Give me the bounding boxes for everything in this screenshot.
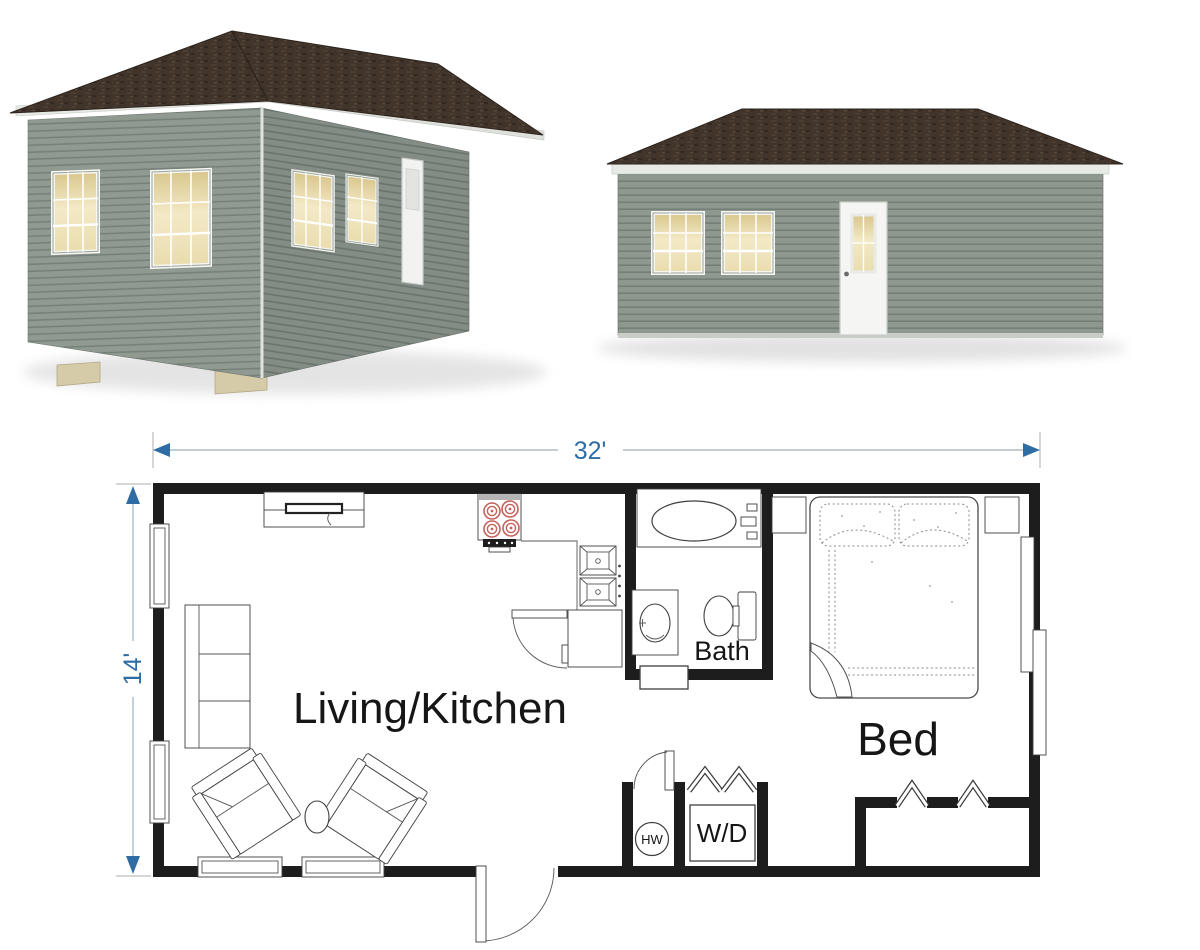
depth-dimension-label: 14' [119,653,147,686]
lit-window [347,175,377,245]
window [150,741,169,823]
floor-plan: 32' 14' [116,432,1046,942]
exterior-render-corner-view [10,31,547,394]
bathroom: Bath [632,489,761,689]
bed-label: Bed [857,713,939,765]
armchair [187,745,301,859]
kitchen [478,494,622,668]
window [150,524,169,608]
burner [503,520,519,536]
arrow-left-icon [153,443,170,457]
eave-fascia [612,163,1109,174]
bedroom: Bed [772,497,1019,806]
burner [484,503,500,519]
burner [502,501,518,517]
width-dimension-label: 32' [574,437,607,465]
lit-window [152,170,210,267]
tv-console [264,492,364,527]
armchair [318,750,432,864]
lit-window [653,213,703,273]
side-door [402,158,423,285]
water-heater-label: HW [641,832,663,847]
burner [484,521,500,537]
washer-dryer-closet: W/D [689,770,755,861]
arrow-right-icon [1023,443,1040,457]
counter-edge [521,541,577,610]
bathtub [637,489,761,547]
bath-door [640,666,688,689]
exterior-render-front-view [597,109,1127,362]
window [302,857,384,877]
nightstand [772,497,806,533]
washer-dryer-label: W/D [697,818,748,848]
lit-window [53,171,98,253]
stove [478,494,521,552]
window [1021,537,1034,672]
bath-label: Bath [694,636,750,666]
sofa [185,605,250,748]
front-door [840,202,887,335]
door-knob [844,272,849,277]
toilet [704,592,756,640]
vanity-sink [632,590,678,655]
arrow-down-icon [126,856,140,874]
side-table [305,801,329,833]
tv [286,504,342,513]
lit-window [293,171,333,251]
living-kitchen-label: Living/Kitchen [293,684,567,733]
refrigerator [512,610,622,668]
skid-foot [57,362,100,386]
page-canvas: 32' 14' [0,0,1200,950]
window [198,857,282,877]
nightstand [985,497,1019,533]
entry-door [476,866,554,942]
kitchen-sink [580,546,621,606]
water-heater-closet: HW [634,751,674,856]
ground-shadow [597,334,1127,362]
arrow-up-icon [126,486,140,504]
bed [810,497,978,698]
width-dimension: 32' [153,432,1040,468]
window [1033,630,1046,755]
depth-dimension: 14' [116,484,151,876]
roof [607,109,1123,164]
utility-closets: HW W/D [634,751,755,861]
lit-window [723,213,773,273]
